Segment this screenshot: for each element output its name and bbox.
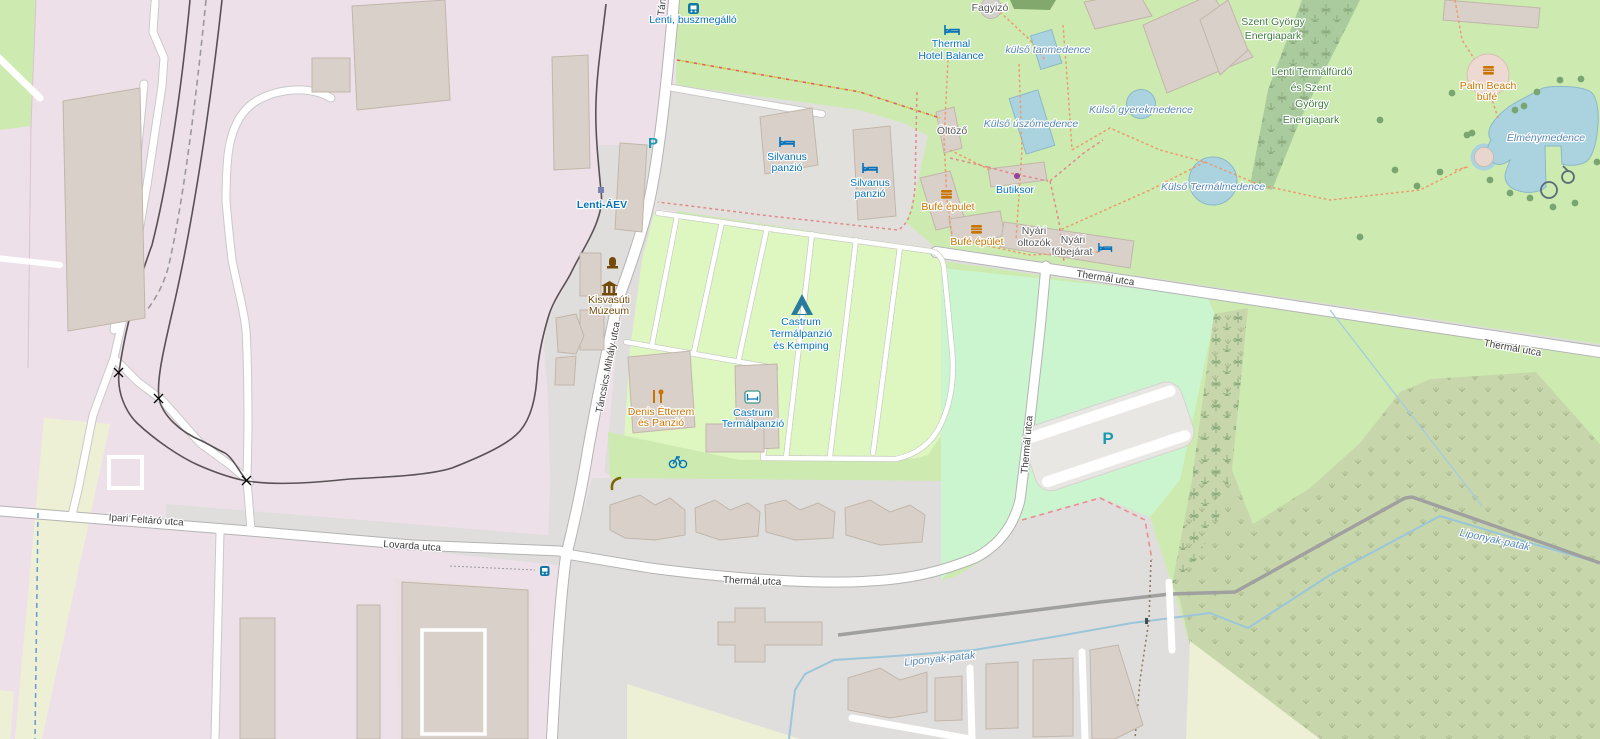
svg-text:panzió: panzió <box>772 162 803 174</box>
svg-text:Fagyizó: Fagyizó <box>972 2 1009 14</box>
svg-text:Hotel Balance: Hotel Balance <box>918 50 984 62</box>
svg-text:és Panzió: és Panzió <box>638 417 684 429</box>
svg-text:György: György <box>1295 98 1330 110</box>
svg-text:Nyári: Nyári <box>1022 225 1047 237</box>
svg-text:Külső úszómedence: Külső úszómedence <box>984 118 1079 130</box>
svg-text:Szent György: Szent György <box>1241 16 1305 28</box>
svg-text:főbejárat: főbejárat <box>1052 246 1093 258</box>
svg-text:Öltöző: Öltöző <box>937 125 968 137</box>
svg-text:és Szent: és Szent <box>1291 82 1332 94</box>
svg-text:Energiapark: Energiapark <box>1283 114 1340 126</box>
svg-text:Lenti Termálfürdő: Lenti Termálfürdő <box>1272 66 1353 78</box>
svg-text:Külső gyerekmedence: Külső gyerekmedence <box>1089 104 1193 116</box>
svg-text:Bufé épulet: Bufé épulet <box>921 201 974 213</box>
svg-text:panzió: panzió <box>855 188 886 200</box>
svg-text:Nyári: Nyári <box>1061 234 1086 246</box>
svg-text:Butiksor: Butiksor <box>996 184 1034 196</box>
svg-text:P: P <box>1102 429 1113 448</box>
svg-text:Thermal: Thermal <box>932 38 971 50</box>
svg-text:Castrum: Castrum <box>781 316 821 328</box>
svg-text:Thermál utca: Thermál utca <box>723 575 782 588</box>
svg-text:és Kemping: és Kemping <box>773 340 829 352</box>
svg-text:Energiapark: Energiapark <box>1245 30 1302 42</box>
svg-text:Múzeum: Múzeum <box>589 305 630 317</box>
svg-text:Lenti-ÁEV: Lenti-ÁEV <box>577 198 627 211</box>
svg-text:Termálpanzió: Termálpanzió <box>722 418 785 430</box>
svg-text:külső tanmedence: külső tanmedence <box>1005 44 1090 56</box>
svg-text:büfé: büfé <box>1477 91 1498 103</box>
svg-text:Termálpanzió: Termálpanzió <box>770 328 833 340</box>
svg-text:Bufé épület: Bufé épület <box>950 236 1003 248</box>
svg-text:oltozók: oltozók <box>1017 237 1051 249</box>
svg-text:Külső Termálmedence: Külső Termálmedence <box>1161 181 1265 193</box>
svg-text:Élménymedence: Élménymedence <box>1507 131 1585 144</box>
svg-text:P: P <box>648 135 658 152</box>
